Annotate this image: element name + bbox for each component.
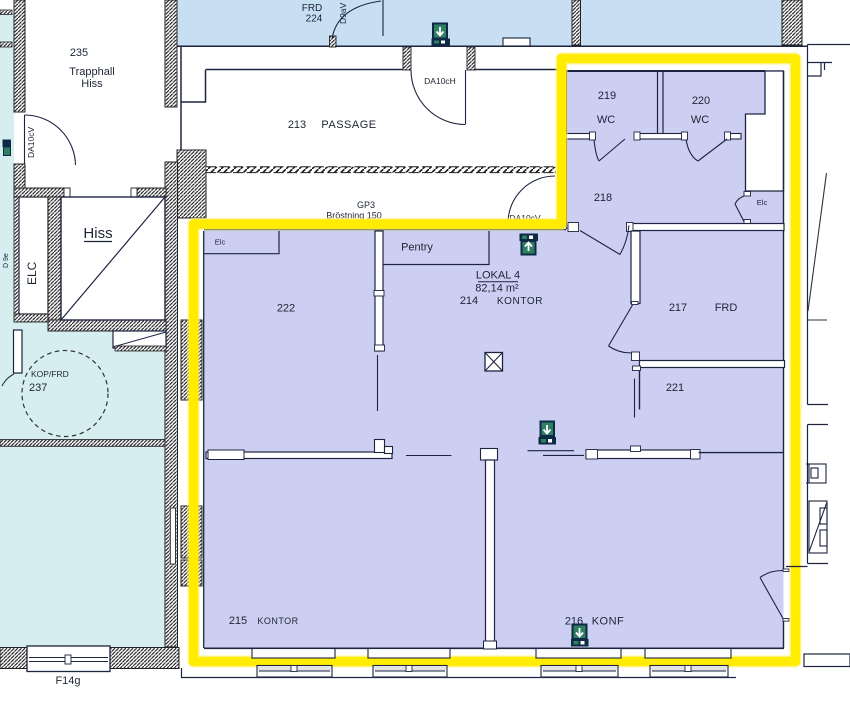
svg-text:Elc: Elc bbox=[757, 198, 768, 207]
svg-text:KONTOR: KONTOR bbox=[497, 296, 543, 307]
svg-text:F14g: F14g bbox=[55, 675, 80, 687]
svg-text:KOP/FRD: KOP/FRD bbox=[31, 369, 69, 379]
svg-text:Hiss: Hiss bbox=[81, 78, 103, 90]
svg-text:WC: WC bbox=[691, 114, 709, 126]
svg-text:213: 213 bbox=[288, 119, 306, 131]
svg-text:LOKAL 4: LOKAL 4 bbox=[476, 270, 520, 282]
svg-text:D 9e: D 9e bbox=[3, 253, 10, 268]
svg-text:214: 214 bbox=[460, 295, 478, 307]
svg-text:ELC: ELC bbox=[25, 261, 39, 285]
svg-text:FRD: FRD bbox=[302, 3, 323, 14]
svg-text:DA10cV: DA10cV bbox=[26, 126, 36, 158]
svg-text:237: 237 bbox=[29, 382, 47, 394]
svg-text:222: 222 bbox=[277, 303, 295, 315]
svg-text:KONTOR: KONTOR bbox=[257, 616, 298, 626]
svg-text:PASSAGE: PASSAGE bbox=[321, 119, 376, 131]
svg-text:224: 224 bbox=[306, 14, 323, 25]
svg-text:WC: WC bbox=[597, 114, 615, 126]
svg-text:219: 219 bbox=[598, 90, 616, 102]
svg-text:235: 235 bbox=[70, 47, 88, 59]
svg-text:221: 221 bbox=[666, 382, 684, 394]
svg-text:Hiss: Hiss bbox=[83, 225, 112, 242]
svg-text:Trapphall: Trapphall bbox=[69, 66, 114, 78]
svg-text:Pentry: Pentry bbox=[401, 242, 433, 254]
svg-text:220: 220 bbox=[692, 95, 710, 107]
svg-text:FRD: FRD bbox=[715, 302, 738, 314]
svg-text:KONF: KONF bbox=[592, 616, 625, 628]
svg-text:215: 215 bbox=[229, 615, 247, 627]
svg-text:217: 217 bbox=[669, 302, 687, 314]
svg-text:GP3: GP3 bbox=[357, 200, 375, 210]
svg-text:Elc: Elc bbox=[215, 238, 226, 247]
svg-text:DA10cH: DA10cH bbox=[424, 76, 456, 86]
svg-text:218: 218 bbox=[594, 192, 612, 204]
svg-text:82,14 m²: 82,14 m² bbox=[475, 283, 519, 295]
